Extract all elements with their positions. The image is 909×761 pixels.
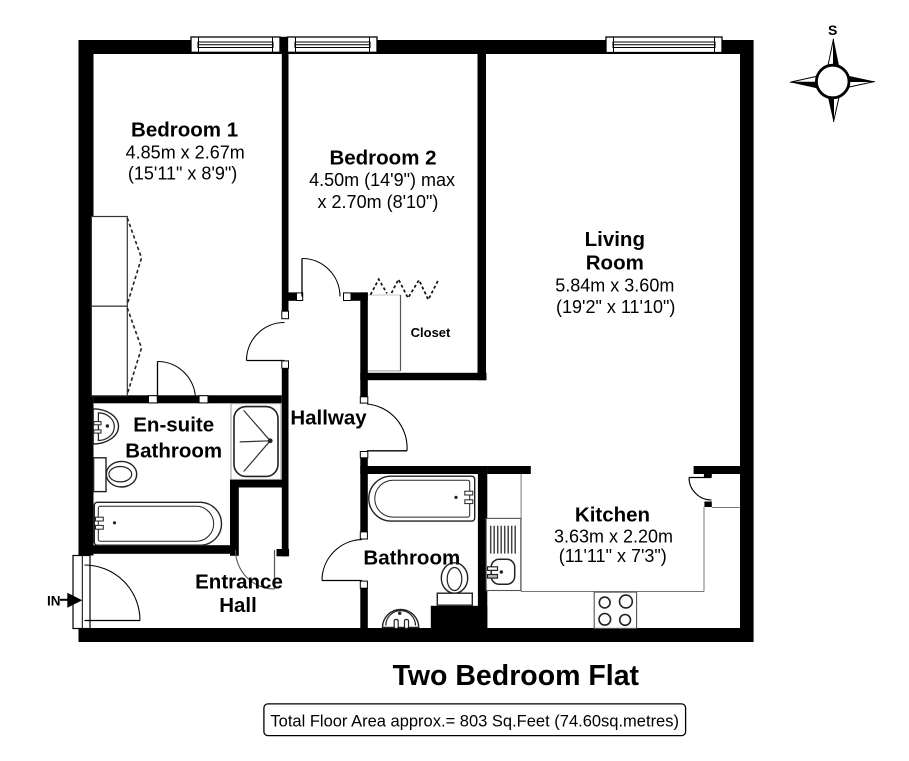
svg-text:3.63m x 2.20m: 3.63m x 2.20m [554, 527, 673, 547]
svg-text:En-suite: En-suite [133, 414, 214, 437]
svg-text:(15'11" x 8'9"): (15'11" x 8'9") [128, 164, 237, 184]
svg-text:4.85m x 2.67m: 4.85m x 2.67m [126, 143, 245, 163]
svg-text:Entrance: Entrance [195, 571, 283, 594]
svg-text:IN: IN [47, 594, 61, 609]
svg-text:Living: Living [585, 228, 645, 251]
svg-text:(19'2" x 11'10"): (19'2" x 11'10") [556, 297, 675, 317]
svg-text:Bedroom 2: Bedroom 2 [329, 147, 436, 170]
svg-text:Two Bedroom Flat: Two Bedroom Flat [393, 660, 640, 692]
svg-text:Hall: Hall [219, 594, 257, 617]
svg-text:5.84m x 3.60m: 5.84m x 3.60m [555, 276, 674, 296]
svg-text:Bedroom 1: Bedroom 1 [131, 119, 238, 142]
svg-text:Bathroom: Bathroom [125, 440, 222, 463]
svg-text:Kitchen: Kitchen [575, 504, 650, 527]
svg-text:(11'11" x 7'3"): (11'11" x 7'3") [559, 546, 667, 566]
svg-text:4.50m (14'9") max: 4.50m (14'9") max [309, 170, 455, 190]
svg-text:Hallway: Hallway [290, 407, 367, 430]
svg-text:S: S [828, 22, 837, 38]
svg-text:Room: Room [586, 252, 644, 275]
svg-text:Total Floor Area approx.= 803: Total Floor Area approx.= 803 Sq.Feet (7… [270, 713, 679, 731]
svg-text:Closet: Closet [411, 325, 451, 340]
svg-text:x 2.70m (8'10"): x 2.70m (8'10") [318, 192, 439, 212]
svg-text:Bathroom: Bathroom [363, 547, 460, 570]
